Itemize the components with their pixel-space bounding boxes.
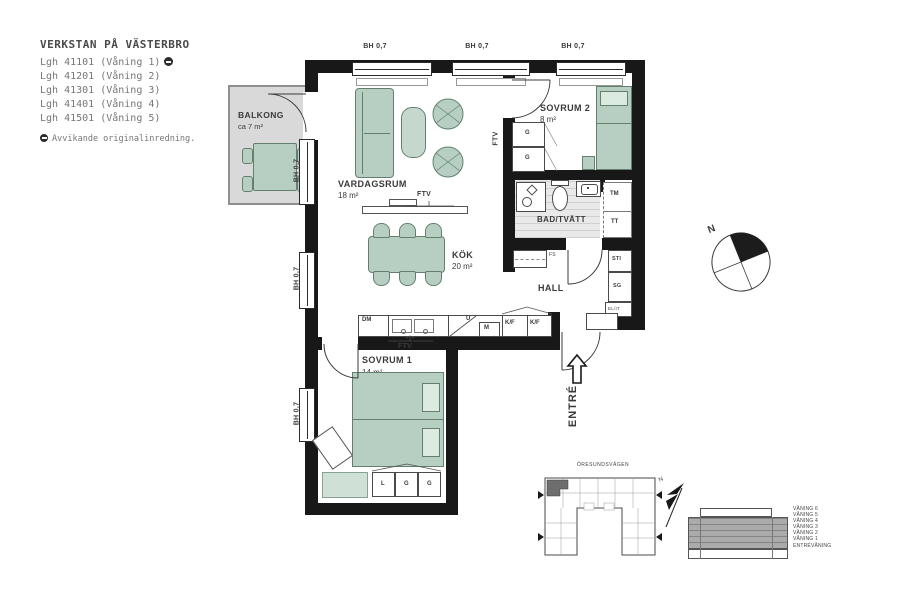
window-sill bbox=[559, 78, 623, 86]
floorplan-page: VERKSTAN PÅ VÄSTERBRO Lgh 41101 (Våning … bbox=[0, 0, 900, 600]
window bbox=[299, 252, 315, 309]
appliance-label-u: U bbox=[466, 316, 470, 322]
tv-shelf bbox=[389, 199, 417, 206]
wall-right bbox=[632, 60, 645, 330]
siteplan-north-label: N bbox=[658, 476, 665, 483]
site-highlighted-unit bbox=[547, 480, 568, 496]
site-building bbox=[538, 478, 662, 555]
wardrobe-label-g: G bbox=[525, 130, 530, 136]
entry-door-leaf bbox=[586, 313, 618, 330]
apartment-label: Lgh 41101 (Våning 1) bbox=[40, 57, 160, 68]
appliance-label-dm: DM bbox=[362, 317, 371, 323]
room-area-vardagsrum: 18 m² bbox=[338, 191, 358, 200]
elevation-divider bbox=[772, 517, 773, 559]
door-arc-entry bbox=[562, 332, 600, 370]
cabinet-fs bbox=[513, 250, 547, 268]
appliance-label-tt: TT bbox=[611, 219, 618, 225]
wardrobe-label-g: G bbox=[427, 481, 432, 487]
window-height-label: BH 0,7 bbox=[553, 43, 593, 50]
apartment-list-item: Lgh 41201 (Våning 2) bbox=[40, 70, 173, 84]
nightstand bbox=[582, 156, 595, 170]
site-entry-markers bbox=[538, 491, 662, 541]
dining-chair bbox=[373, 271, 390, 286]
dining-chair bbox=[425, 271, 442, 286]
room-label-hall: HALL bbox=[538, 283, 564, 293]
sofa bbox=[355, 88, 394, 178]
room-label-vardagsrum: VARDAGSRUM bbox=[338, 179, 407, 189]
room-label-sovrum2: SOVRUM 2 bbox=[540, 103, 590, 113]
appliance-label-kf: K/F bbox=[505, 320, 515, 326]
elevation-entrance-floor bbox=[688, 549, 788, 559]
apartment-list: Lgh 41101 (Våning 1) Lgh 41201 (Våning 2… bbox=[40, 56, 173, 126]
tv-bench bbox=[362, 206, 468, 214]
elevation-top-floor bbox=[700, 508, 772, 517]
toilet-bowl bbox=[552, 186, 568, 211]
window-height-label: BH 0,7 bbox=[294, 151, 301, 191]
elevation-highlight-floors bbox=[688, 517, 788, 549]
elevation-divider bbox=[700, 517, 701, 559]
counter-divider bbox=[388, 315, 389, 337]
page-title: VERKSTAN PÅ VÄSTERBRO bbox=[40, 38, 190, 51]
apartment-list-item: Lgh 41101 (Våning 1) bbox=[40, 56, 173, 70]
window-height-label: BH 0,7 bbox=[294, 259, 301, 299]
wardrobe-hatch bbox=[545, 124, 557, 171]
dining-chair bbox=[399, 271, 416, 286]
opening-bath-door bbox=[566, 236, 602, 252]
window-sill bbox=[456, 78, 526, 86]
room-label-sovrum1: SOVRUM 1 bbox=[362, 355, 412, 365]
cabinet-peak-mark bbox=[502, 307, 552, 314]
balcony-chair bbox=[242, 148, 253, 164]
window bbox=[452, 62, 530, 76]
closet-label-elit: EL/IT bbox=[608, 306, 620, 311]
cabinet-label-fs: FS bbox=[549, 252, 556, 258]
bed-single bbox=[596, 86, 632, 170]
room-label-bad: BAD/TVÄTT bbox=[537, 215, 586, 224]
entre-label: ENTRÉ bbox=[567, 376, 579, 436]
apartment-list-item: Lgh 41401 (Våning 4) bbox=[40, 98, 173, 112]
north-arrow-icon bbox=[666, 483, 684, 527]
counter-divider bbox=[527, 315, 528, 337]
wardrobe-label-g: G bbox=[404, 481, 409, 487]
washbasin bbox=[576, 181, 601, 197]
deviating-interior-icon bbox=[40, 134, 48, 142]
window bbox=[352, 62, 432, 76]
outlet-label-ftv: FTV bbox=[417, 191, 431, 198]
legend-note: Avvikande originalinredning. bbox=[40, 134, 195, 144]
apartment-list-item: Lgh 41301 (Våning 3) bbox=[40, 84, 173, 98]
closet-label-sti: STI bbox=[612, 256, 621, 262]
balcony-table bbox=[253, 143, 297, 191]
street-label: ÖRESUNDSVÄGEN bbox=[558, 462, 648, 468]
dining-chair bbox=[425, 223, 442, 238]
appliance-label-m: M bbox=[484, 325, 489, 331]
counter-divider bbox=[448, 315, 449, 337]
counter-divider bbox=[502, 315, 503, 337]
room-label-balkong: BALKONG bbox=[238, 110, 284, 120]
elevation-floor-labels: VÅNING 6 VÅNING 5 VÅNING 4 VÅNING 3 VÅNI… bbox=[793, 506, 831, 549]
armchair bbox=[433, 99, 463, 177]
window-sill bbox=[356, 78, 428, 86]
window bbox=[299, 388, 315, 442]
coffee-table bbox=[401, 107, 426, 158]
dining-chair bbox=[399, 223, 416, 238]
wall-sovrum1-bottom bbox=[305, 503, 458, 515]
wardrobe-label-g: G bbox=[525, 155, 530, 161]
opening-balcony-door bbox=[303, 92, 320, 140]
wardrobe-label-l: L bbox=[381, 481, 385, 487]
window bbox=[556, 62, 626, 76]
door-arc-bath bbox=[568, 250, 602, 284]
window-height-label: BH 0,7 bbox=[457, 43, 497, 50]
rug bbox=[322, 472, 368, 498]
microwave bbox=[479, 322, 500, 337]
outlet-label-ftv: FTV bbox=[398, 343, 412, 350]
shower bbox=[516, 182, 546, 212]
dining-chair bbox=[373, 223, 390, 238]
room-area-balkong: ca 7 m² bbox=[238, 122, 263, 131]
outlet-label-ftv: FTV bbox=[493, 119, 500, 159]
closet-label-sg: SG bbox=[613, 283, 621, 289]
sink bbox=[392, 319, 412, 333]
dining-table bbox=[368, 236, 445, 273]
floor-label: ENTRÉVÅNING bbox=[793, 543, 831, 549]
compass-icon bbox=[703, 224, 779, 300]
bedroom-chair bbox=[312, 426, 353, 470]
legend-note-text: Avvikande originalinredning. bbox=[52, 134, 195, 144]
opening-sovrum1-door bbox=[322, 335, 358, 352]
window bbox=[299, 139, 315, 205]
sink bbox=[414, 319, 434, 333]
compass-north-label: N bbox=[706, 223, 717, 236]
room-area-kok: 20 m² bbox=[452, 262, 472, 271]
apartment-list-item: Lgh 41501 (Våning 5) bbox=[40, 112, 173, 126]
deviating-interior-icon bbox=[164, 57, 173, 66]
appliance-label-kf: K/F bbox=[530, 320, 540, 326]
wall-sovrum1-right bbox=[446, 337, 458, 503]
window-height-label: BH 0,7 bbox=[355, 43, 395, 50]
balcony-chair bbox=[242, 176, 253, 192]
room-label-kok: KÖK bbox=[452, 250, 473, 260]
bed-double bbox=[352, 372, 444, 467]
appliance-label-tm: TM bbox=[610, 191, 619, 197]
window-height-label: BH 0,7 bbox=[294, 394, 301, 434]
